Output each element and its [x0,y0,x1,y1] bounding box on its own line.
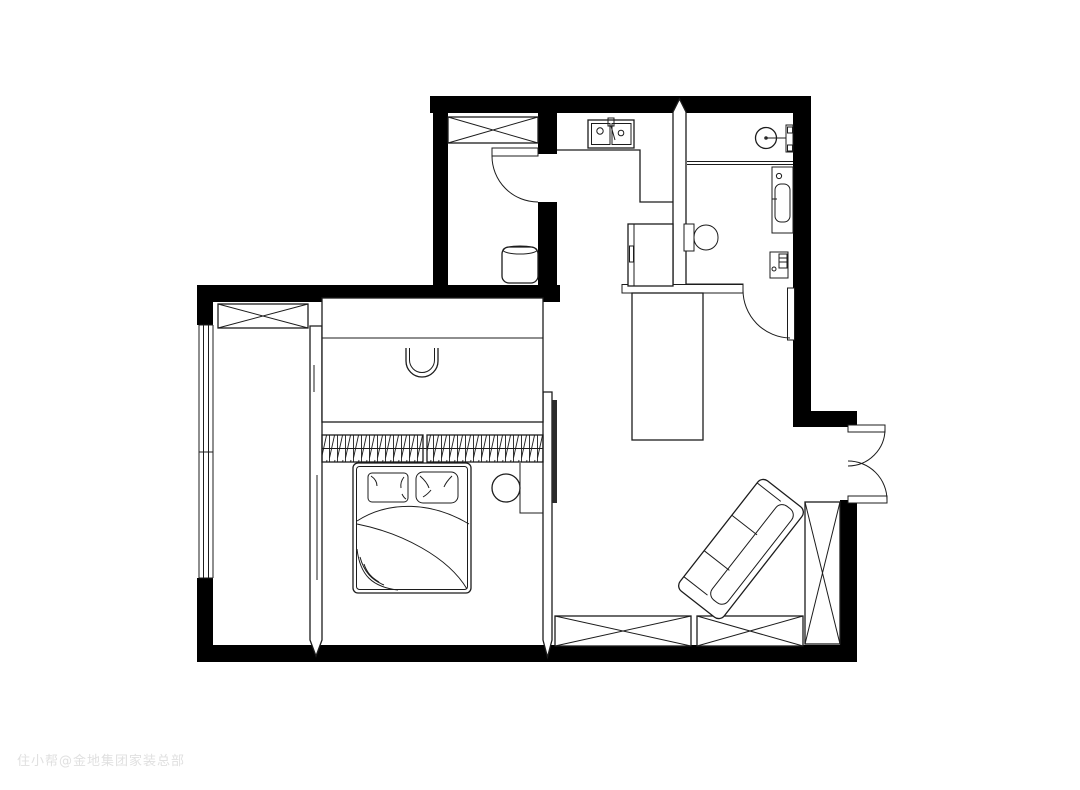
wall-entry-lower [840,500,857,652]
storage-cabinet-x-b [697,616,803,646]
wall-top [430,96,811,113]
floor-plan-canvas [0,0,1080,790]
refrigerator [628,224,673,286]
desk [322,298,543,422]
utility-door [492,148,538,202]
shower-partition [687,162,793,165]
bed [353,463,471,593]
wall-bottom [197,645,857,662]
bedside-stool [492,474,520,502]
utility-room [448,117,538,283]
storage-cabinet-x-a [555,616,691,646]
sofa [676,477,806,622]
kitchen [557,118,673,286]
kitchen-counter [557,150,673,202]
bedroom-cabinet-x [218,304,308,328]
laundry-hamper [502,246,538,283]
dining-hall [632,293,703,440]
pillow-left [368,473,408,502]
dining-table [632,293,703,440]
watermark-text: 住小帮@金地集团家装总部 [17,750,185,769]
window-left [199,325,213,578]
floor-plan [0,0,1080,790]
toilet [684,224,718,251]
partition-kitchen-bath [673,99,686,285]
bath-cabinet [770,252,788,278]
wall-left-upper [197,285,213,325]
partition-bedroom-living [543,392,552,657]
partition-closet [310,326,322,656]
living-area [555,477,806,646]
entry-shoe-cabinet-x [805,502,840,644]
bedside-shelf [520,463,543,513]
wall-utility-left [433,96,448,291]
wall-utility-right-lower [538,202,557,290]
pillow-right [416,472,458,503]
storage-cabinet-x [448,117,538,143]
bathroom-door [743,288,795,340]
shower-head [756,125,794,152]
headboard-panel [322,435,543,462]
wall-entry-step [793,411,857,427]
tv-on-partition [552,400,557,503]
washbasin [772,167,793,233]
entry-double-door [848,425,887,503]
kitchen-sink [588,118,634,148]
wall-right [793,96,811,427]
bedroom [218,298,543,593]
wall-utility-right-upper [538,96,557,154]
